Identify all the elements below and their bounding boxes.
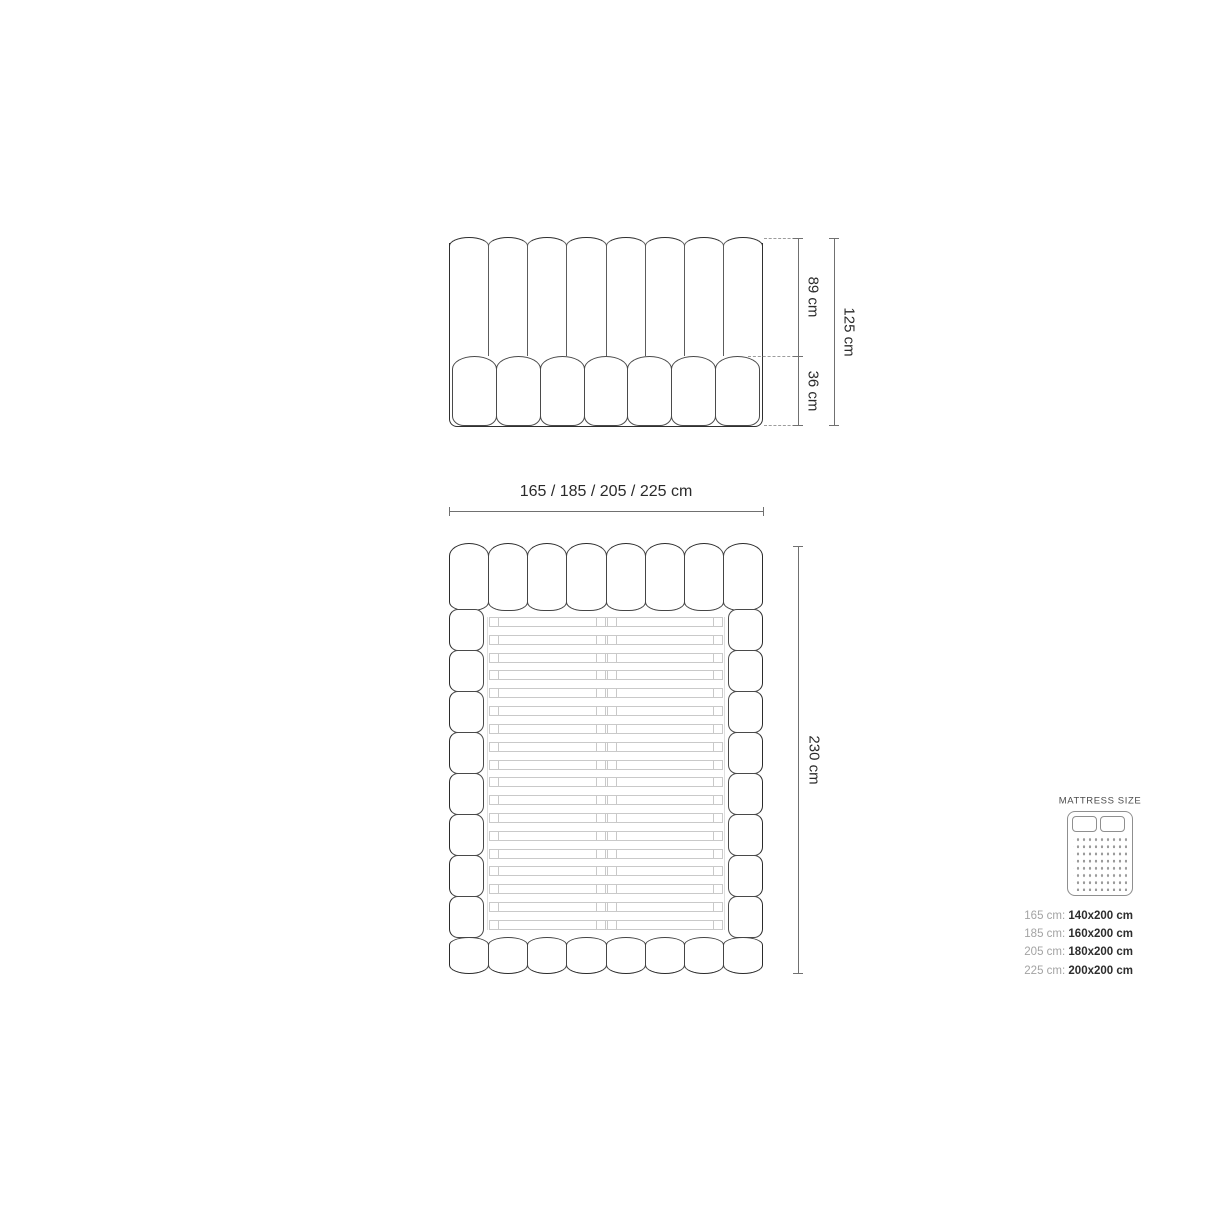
dimension-line-length bbox=[798, 546, 799, 973]
slat-cap bbox=[489, 706, 499, 716]
slat bbox=[489, 688, 723, 698]
mattress-tufting-dots bbox=[1073, 834, 1127, 891]
dim-tick bbox=[763, 507, 764, 516]
headboard-channel bbox=[723, 237, 763, 356]
top-foot-cushion-row bbox=[449, 937, 763, 974]
slat bbox=[489, 831, 723, 841]
slat-cap bbox=[489, 742, 499, 752]
slat-cap bbox=[489, 724, 499, 734]
head-cushion bbox=[449, 543, 489, 611]
slat-cap bbox=[596, 670, 606, 680]
slat-cap bbox=[596, 706, 606, 716]
dimension-line-total-height bbox=[834, 238, 835, 425]
slat-cap bbox=[489, 760, 499, 770]
rail-segment bbox=[449, 732, 484, 774]
foot-cushion bbox=[449, 937, 489, 974]
slat-cap bbox=[489, 866, 499, 876]
rail-segment bbox=[728, 855, 763, 897]
base-cushion bbox=[715, 356, 760, 426]
rail-left bbox=[449, 609, 484, 938]
slat-cap bbox=[596, 760, 606, 770]
base-cushion bbox=[452, 356, 497, 426]
headboard-channel bbox=[527, 237, 567, 356]
top-head-cushion-row bbox=[449, 543, 763, 611]
rail-segment bbox=[728, 650, 763, 692]
slat-cap bbox=[607, 795, 617, 805]
slat-cap bbox=[713, 813, 723, 823]
dim-tick bbox=[449, 507, 450, 516]
head-cushion bbox=[566, 543, 606, 611]
slat-cap bbox=[489, 831, 499, 841]
slat-cap bbox=[713, 884, 723, 894]
slat-cap bbox=[607, 760, 617, 770]
slat-cap bbox=[607, 849, 617, 859]
slat-cap bbox=[607, 688, 617, 698]
slat-cap bbox=[713, 849, 723, 859]
dimension-line-width bbox=[449, 511, 763, 512]
rail-segment bbox=[728, 609, 763, 651]
rail-segment bbox=[728, 896, 763, 938]
slat-cap bbox=[489, 920, 499, 930]
slat-cap bbox=[713, 902, 723, 912]
dimension-label-lower-height: 36 cm bbox=[805, 371, 822, 412]
rail-segment bbox=[449, 773, 484, 815]
slat-cap bbox=[596, 813, 606, 823]
mattress-size-title: MATTRESS SIZE bbox=[1059, 796, 1142, 807]
slat-cap bbox=[607, 777, 617, 787]
slat-cap bbox=[489, 849, 499, 859]
slat-cap bbox=[713, 617, 723, 627]
head-cushion bbox=[527, 543, 567, 611]
slat bbox=[489, 902, 723, 912]
slat-cap bbox=[596, 866, 606, 876]
slat-cap bbox=[489, 902, 499, 912]
slat-cap bbox=[607, 742, 617, 752]
slat-cap bbox=[607, 724, 617, 734]
slat-cap bbox=[607, 831, 617, 841]
headboard-channel bbox=[645, 237, 685, 356]
slat bbox=[489, 795, 723, 805]
foot-cushion bbox=[527, 937, 567, 974]
slat-area bbox=[487, 617, 725, 930]
slat-cap bbox=[713, 706, 723, 716]
slat-cap bbox=[596, 724, 606, 734]
dim-tick bbox=[793, 356, 803, 357]
slat-cap bbox=[713, 724, 723, 734]
head-cushion bbox=[723, 543, 763, 611]
slat-cap bbox=[713, 795, 723, 805]
mattress-size-list: 165 cm: 140x200 cm 185 cm: 160x200 cm 20… bbox=[1003, 907, 1133, 980]
mattress-size-row: 165 cm: 140x200 cm bbox=[1003, 907, 1133, 925]
dim-tick bbox=[829, 425, 839, 426]
slat bbox=[489, 920, 723, 930]
slat-cap bbox=[713, 760, 723, 770]
slat-cap bbox=[596, 688, 606, 698]
head-cushion bbox=[645, 543, 685, 611]
rail-right bbox=[728, 609, 763, 938]
slat-cap bbox=[596, 653, 606, 663]
foot-cushion bbox=[723, 937, 763, 974]
head-cushion bbox=[684, 543, 724, 611]
slat-cap bbox=[489, 617, 499, 627]
base-cushion bbox=[540, 356, 585, 426]
slat-cap bbox=[489, 884, 499, 894]
slat-cap bbox=[596, 902, 606, 912]
slat bbox=[489, 760, 723, 770]
front-base-cushions bbox=[452, 356, 760, 426]
slat-cap bbox=[607, 902, 617, 912]
slat-cap bbox=[596, 884, 606, 894]
mattress-icon bbox=[1067, 811, 1133, 896]
rail-segment bbox=[728, 691, 763, 733]
dimension-label-total-height: 125 cm bbox=[841, 307, 858, 356]
slat-cap bbox=[596, 617, 606, 627]
slat bbox=[489, 849, 723, 859]
slat-cap bbox=[489, 795, 499, 805]
foot-cushion bbox=[606, 937, 646, 974]
rail-segment bbox=[449, 855, 484, 897]
bed-dimension-diagram: 89 cm 36 cm 125 cm 165 / 185 / 205 / 225… bbox=[0, 0, 1214, 1214]
slat-cap bbox=[596, 849, 606, 859]
rail-segment bbox=[449, 650, 484, 692]
slat-cap bbox=[489, 653, 499, 663]
rail-segment bbox=[449, 896, 484, 938]
base-cushion bbox=[671, 356, 716, 426]
head-cushion bbox=[488, 543, 528, 611]
slat bbox=[489, 742, 723, 752]
slat-cap bbox=[607, 706, 617, 716]
foot-cushion bbox=[566, 937, 606, 974]
slat-cap bbox=[489, 688, 499, 698]
headboard-channels bbox=[449, 237, 763, 356]
slat-cap bbox=[607, 670, 617, 680]
dimension-label-upper-height: 89 cm bbox=[805, 277, 822, 318]
head-cushion bbox=[606, 543, 646, 611]
dim-tick bbox=[793, 425, 803, 426]
slat bbox=[489, 670, 723, 680]
slat bbox=[489, 653, 723, 663]
slat-cap bbox=[596, 831, 606, 841]
slat-cap bbox=[607, 866, 617, 876]
slat-cap bbox=[489, 670, 499, 680]
slat-cap bbox=[607, 653, 617, 663]
rail-segment bbox=[728, 814, 763, 856]
slat bbox=[489, 813, 723, 823]
base-cushion bbox=[584, 356, 629, 426]
mattress-size-row: 185 cm: 160x200 cm bbox=[1003, 925, 1133, 943]
slat-cap bbox=[607, 635, 617, 645]
base-cushion bbox=[627, 356, 672, 426]
slat-cap bbox=[713, 688, 723, 698]
foot-cushion bbox=[488, 937, 528, 974]
slat bbox=[489, 884, 723, 894]
top-view-drawing bbox=[449, 543, 763, 974]
foot-cushion bbox=[645, 937, 685, 974]
headboard-channel bbox=[449, 237, 489, 356]
slat-cap bbox=[713, 742, 723, 752]
slat bbox=[489, 724, 723, 734]
rail-segment bbox=[449, 691, 484, 733]
slat-cap bbox=[607, 813, 617, 823]
slat-cap bbox=[489, 635, 499, 645]
slat-cap bbox=[713, 920, 723, 930]
slat bbox=[489, 866, 723, 876]
slat bbox=[489, 617, 723, 627]
slat-cap bbox=[713, 777, 723, 787]
rail-segment bbox=[449, 609, 484, 651]
rail-segment bbox=[728, 732, 763, 774]
slat-cap bbox=[596, 795, 606, 805]
pillow-right-icon bbox=[1100, 816, 1125, 832]
slat-cap bbox=[713, 635, 723, 645]
slat-cap bbox=[489, 777, 499, 787]
slat-cap bbox=[607, 617, 617, 627]
headboard-channel bbox=[566, 237, 606, 356]
dimension-line-height-split bbox=[798, 238, 799, 425]
rail-segment bbox=[449, 814, 484, 856]
slat-cap bbox=[713, 831, 723, 841]
base-cushion bbox=[496, 356, 541, 426]
slat bbox=[489, 635, 723, 645]
front-view-drawing bbox=[449, 237, 763, 427]
slat-cap bbox=[607, 920, 617, 930]
slat-cap bbox=[596, 777, 606, 787]
mattress-size-row: 205 cm: 180x200 cm bbox=[1003, 943, 1133, 961]
dimension-label-length: 230 cm bbox=[806, 735, 823, 784]
headboard-channel bbox=[488, 237, 528, 356]
slat-cap bbox=[489, 813, 499, 823]
dimension-label-width: 165 / 185 / 205 / 225 cm bbox=[520, 483, 693, 501]
slat-cap bbox=[596, 635, 606, 645]
foot-cushion bbox=[684, 937, 724, 974]
mattress-size-row: 225 cm: 200x200 cm bbox=[1003, 962, 1133, 980]
slat-cap bbox=[607, 884, 617, 894]
slat-cap bbox=[713, 866, 723, 876]
slat-cap bbox=[713, 653, 723, 663]
slat-cap bbox=[596, 920, 606, 930]
headboard-channel bbox=[684, 237, 724, 356]
headboard-channel bbox=[606, 237, 646, 356]
slat bbox=[489, 706, 723, 716]
dim-tick bbox=[793, 546, 803, 547]
slat bbox=[489, 777, 723, 787]
dim-tick bbox=[829, 238, 839, 239]
dim-tick bbox=[793, 238, 803, 239]
rail-segment bbox=[728, 773, 763, 815]
dim-tick bbox=[793, 973, 803, 974]
pillow-left-icon bbox=[1072, 816, 1097, 832]
slat-cap bbox=[596, 742, 606, 752]
slat-cap bbox=[713, 670, 723, 680]
